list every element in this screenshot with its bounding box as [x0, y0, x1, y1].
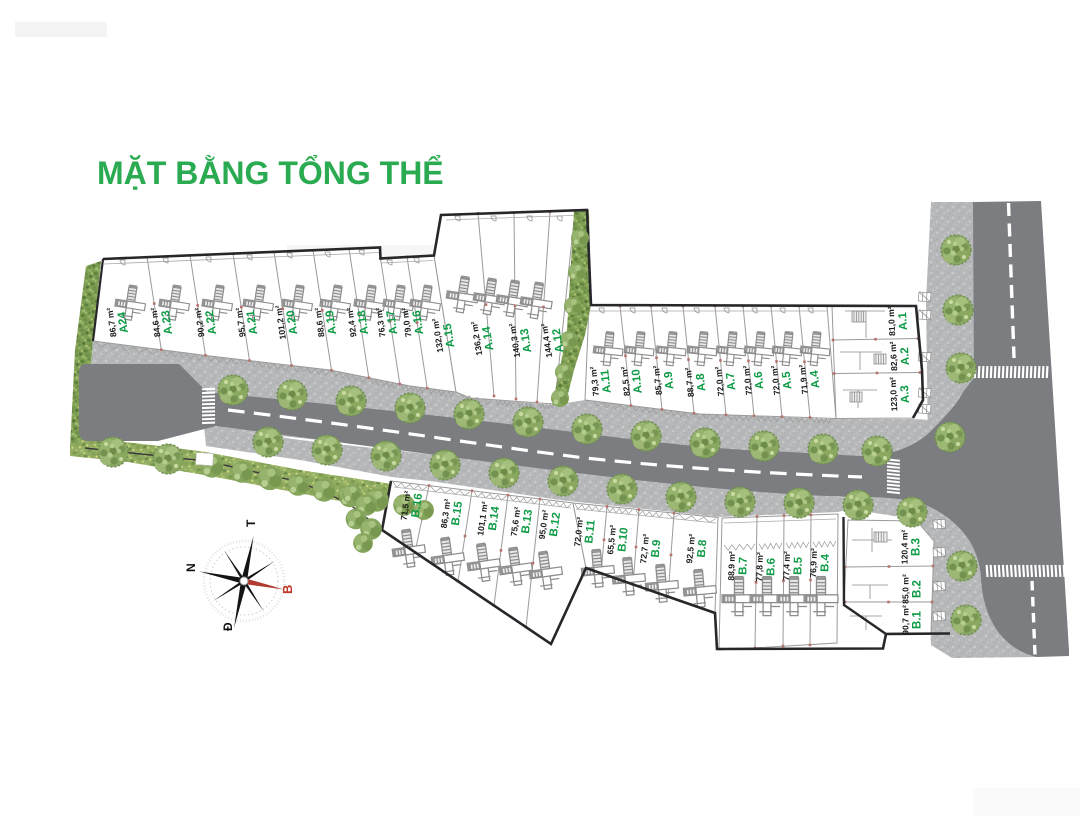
- svg-text:T: T: [244, 519, 258, 527]
- svg-text:B.6: B.6: [765, 558, 778, 576]
- svg-text:77,8 m²: 77,8 m²: [754, 552, 765, 582]
- svg-text:B: B: [280, 585, 295, 594]
- svg-text:123,0 m²: 123,0 m²: [888, 377, 900, 412]
- svg-text:N: N: [184, 563, 198, 572]
- svg-text:82,6 m²: 82,6 m²: [888, 341, 900, 371]
- svg-text:A.7: A.7: [725, 372, 739, 391]
- svg-text:90,7 m²: 90,7 m²: [901, 605, 911, 635]
- svg-text:A.1: A.1: [897, 311, 910, 330]
- svg-text:B.2: B.2: [912, 580, 924, 598]
- svg-text:85,0 m²: 85,0 m²: [901, 574, 911, 604]
- svg-text:A.3: A.3: [899, 385, 912, 404]
- svg-text:B.1: B.1: [912, 610, 924, 629]
- svg-text:MẶT BẰNG TỔNG THỂ: MẶT BẰNG TỔNG THỂ: [97, 155, 444, 191]
- svg-text:B.5: B.5: [792, 556, 805, 575]
- svg-text:A.11: A.11: [599, 368, 613, 393]
- svg-text:A.4: A.4: [809, 369, 823, 389]
- svg-text:77,4 m²: 77,4 m²: [781, 551, 792, 581]
- svg-text:Đ: Đ: [221, 622, 235, 631]
- svg-text:88,9 m²: 88,9 m²: [726, 551, 737, 581]
- svg-text:B.8: B.8: [696, 539, 710, 559]
- svg-text:B.9: B.9: [650, 539, 664, 558]
- svg-text:81,0 m²: 81,0 m²: [886, 306, 898, 336]
- svg-text:A.8: A.8: [695, 372, 709, 392]
- svg-text:B.7: B.7: [737, 557, 750, 575]
- svg-text:B.10: B.10: [616, 527, 630, 552]
- svg-text:B.4: B.4: [819, 553, 832, 572]
- svg-text:A.2: A.2: [899, 347, 912, 366]
- svg-text:120,4 m²: 120,4 m²: [900, 530, 910, 565]
- svg-text:A.10: A.10: [630, 369, 644, 394]
- svg-text:A.9: A.9: [663, 371, 677, 390]
- svg-text:A.6: A.6: [753, 371, 767, 390]
- svg-text:B.11: B.11: [583, 519, 597, 544]
- svg-text:B.3: B.3: [911, 538, 923, 556]
- svg-text:76,9 m²: 76,9 m²: [808, 548, 819, 578]
- svg-text:A.5: A.5: [781, 370, 795, 390]
